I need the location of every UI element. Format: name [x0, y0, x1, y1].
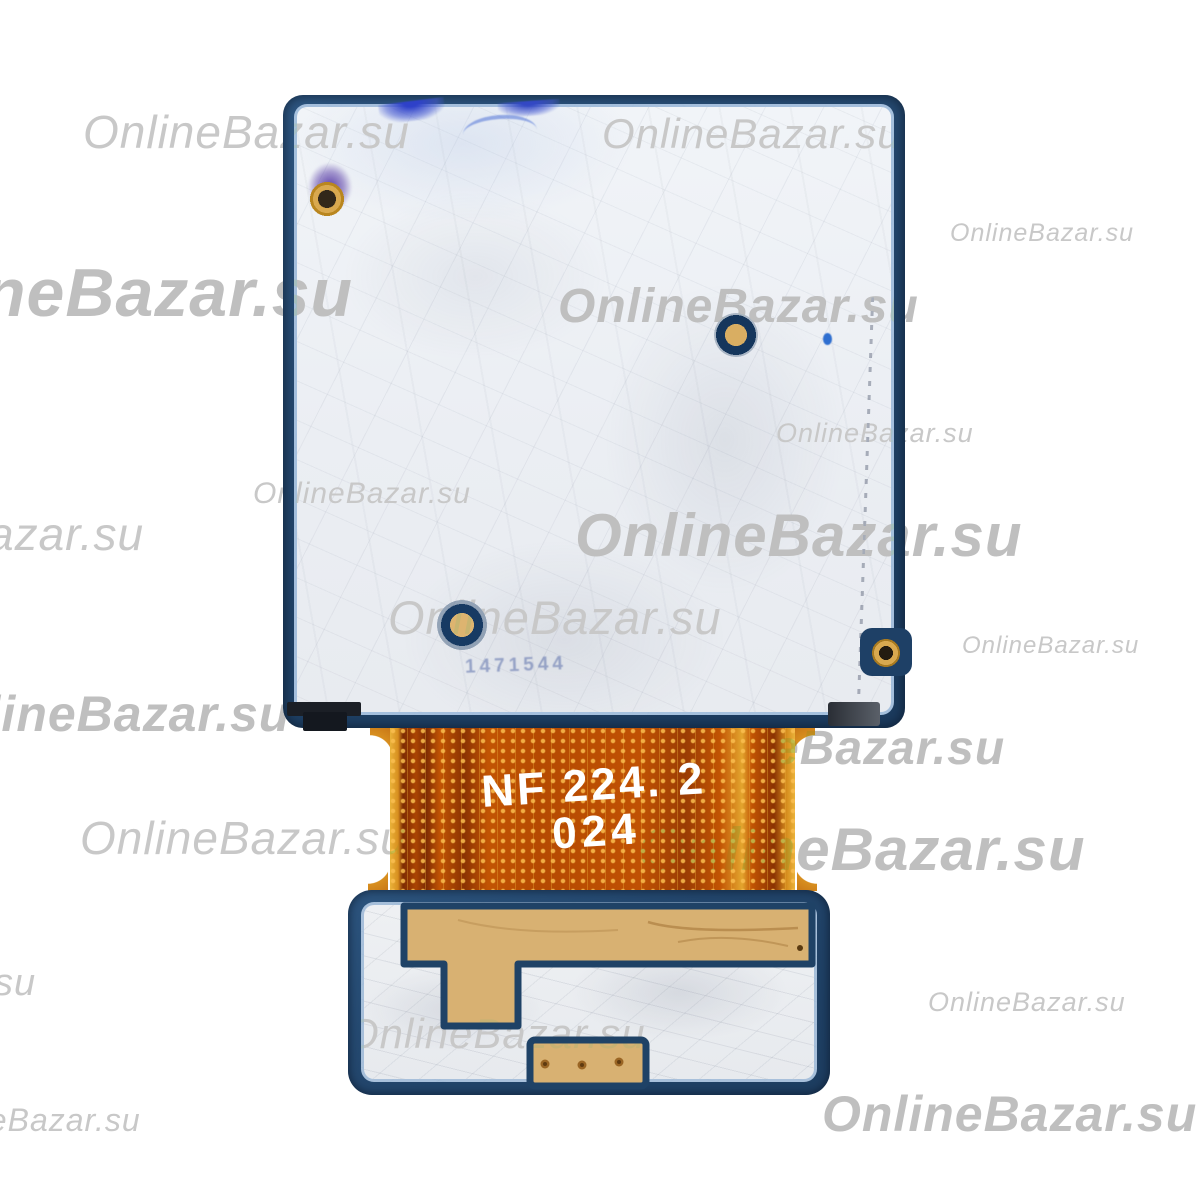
watermark-text: OnlineBazar.su [950, 220, 1134, 246]
watermark-text: OnlineBazar.su [822, 1088, 1197, 1141]
copper-pads-graphic [348, 890, 830, 1095]
faint-board-marking: 1471544 [465, 653, 568, 679]
flex-fillet [797, 861, 817, 891]
screw-center-left [437, 600, 487, 650]
copper-t-pad [404, 906, 812, 1026]
connector-pin-hole [543, 1062, 547, 1066]
product-photo-canvas: 1471544 NF 224. 2 024 [0, 0, 1200, 1200]
blue-paint-streak [378, 97, 446, 125]
shield-clip-left [303, 712, 347, 731]
shield-label: 1471544 [294, 104, 894, 715]
flex-silkscreen-text: NF 224. 2 024 [447, 753, 742, 863]
watermark-text: OnlineBazar.su [80, 814, 407, 862]
watermark-text: neBazar.su [0, 1104, 141, 1138]
screw-right [871, 638, 901, 668]
screw-top-left [308, 180, 346, 218]
watermark-text: azar.su [0, 510, 144, 558]
screw-mount-right [860, 628, 912, 676]
flex-fillet [795, 728, 815, 758]
camera-module-shield: 1471544 [283, 95, 905, 728]
watermark-text: OnlineBazar.su [962, 633, 1139, 658]
blue-paint-arc [462, 112, 538, 151]
screw-middle [714, 313, 758, 357]
watermark-text: OnlineBazar.su [928, 988, 1126, 1016]
copper-pin-hole [797, 945, 803, 951]
blue-speck [823, 333, 832, 345]
flex-fillet [368, 861, 388, 891]
connector-pin-hole [617, 1060, 621, 1064]
shield-clip-right [828, 702, 880, 726]
watermark-text: su [0, 964, 36, 1004]
flex-fillet [370, 728, 390, 758]
connector-pin-hole [580, 1063, 584, 1067]
watermark-text: nlineBazar.su [0, 688, 290, 741]
connector-board [348, 890, 830, 1095]
